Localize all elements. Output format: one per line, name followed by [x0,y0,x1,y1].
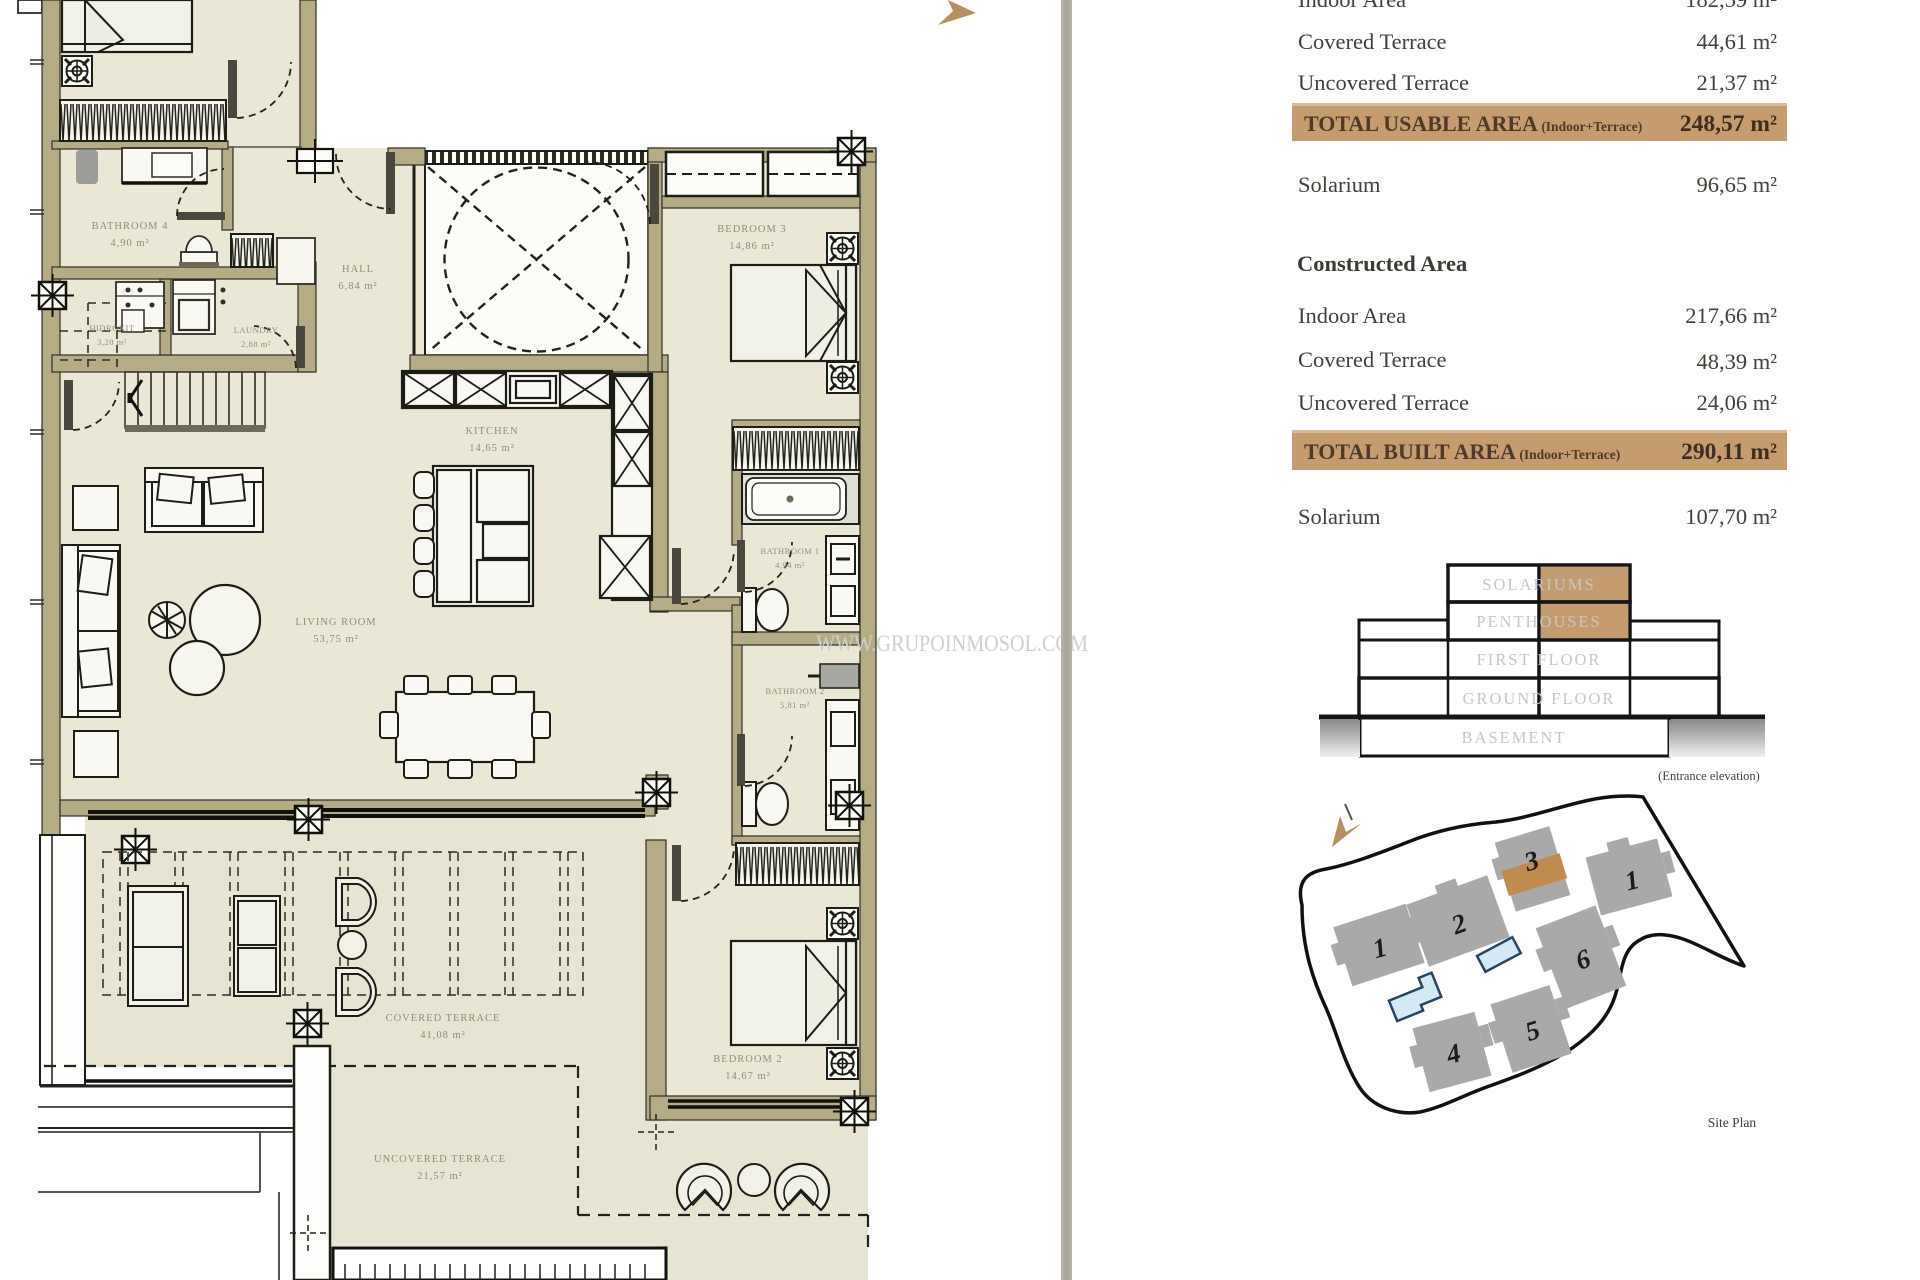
svg-text:41,08 m²: 41,08 m² [420,1030,466,1041]
svg-text:(Entrance elevation): (Entrance elevation) [1658,769,1760,783]
svg-text:53,75 m²: 53,75 m² [313,634,359,645]
svg-text:Covered Terrace: Covered Terrace [1298,347,1447,372]
svg-text:3,20 m²: 3,20 m² [97,337,127,347]
svg-text:21,57 m²: 21,57 m² [417,1171,463,1182]
svg-text:Constructed Area: Constructed Area [1297,251,1467,276]
svg-text:HIDROKIT: HIDROKIT [89,323,134,333]
svg-text:UNCOVERED TERRACE: UNCOVERED TERRACE [374,1154,506,1165]
svg-text:248,57 m²: 248,57 m² [1680,111,1777,137]
svg-text:21,37 m²: 21,37 m² [1697,70,1778,95]
svg-text:COVERED TERRACE: COVERED TERRACE [386,1013,501,1024]
svg-text:BATHROOM 4: BATHROOM 4 [92,221,169,232]
svg-text:BASEMENT: BASEMENT [1462,728,1567,747]
svg-text:217,66 m²: 217,66 m² [1685,303,1777,328]
svg-text:Uncovered Terrace: Uncovered Terrace [1298,70,1469,95]
svg-text:14,65 m²: 14,65 m² [469,443,515,454]
svg-text:2,88 m²: 2,88 m² [241,339,271,349]
svg-text:LIVING ROOM: LIVING ROOM [295,617,376,628]
svg-text:6,84 m²: 6,84 m² [338,281,377,292]
svg-text:GROUND FLOOR: GROUND FLOOR [1463,689,1616,708]
svg-text:96,65 m²: 96,65 m² [1697,172,1778,197]
svg-text:4,90 m²: 4,90 m² [110,238,149,249]
svg-text:5,81 m²: 5,81 m² [780,700,810,710]
svg-text:BEDROOM 3: BEDROOM 3 [717,224,786,235]
svg-text:SOLARIUMS: SOLARIUMS [1482,575,1595,594]
svg-text:Indoor Area: Indoor Area [1298,303,1406,328]
svg-text:Indoor Area: Indoor Area [1298,0,1406,12]
svg-text:Covered Terrace: Covered Terrace [1298,29,1447,54]
svg-text:4,94 m²: 4,94 m² [775,560,805,570]
svg-text:Solarium: Solarium [1298,172,1381,197]
svg-text:182,59 m²: 182,59 m² [1685,0,1777,12]
svg-text:KITCHEN: KITCHEN [465,426,518,437]
svg-text:14,86 m²: 14,86 m² [729,241,775,252]
svg-text:290,11 m²: 290,11 m² [1681,439,1777,465]
svg-text:Uncovered Terrace: Uncovered Terrace [1298,390,1469,415]
svg-text:BEDROOM 2: BEDROOM 2 [713,1054,782,1065]
svg-text:14,67 m²: 14,67 m² [725,1071,771,1082]
svg-text:48,39 m²: 48,39 m² [1697,349,1778,374]
svg-text:Solarium: Solarium [1298,504,1381,529]
svg-text:24,06 m²: 24,06 m² [1697,390,1778,415]
svg-text:107,70 m²: 107,70 m² [1685,504,1777,529]
svg-text:HALL: HALL [342,264,374,275]
svg-text:BATHROOM 1: BATHROOM 1 [760,546,819,556]
svg-text:WWW.GRUPOINMOSOL.COM: WWW.GRUPOINMOSOL.COM [816,631,1088,656]
svg-text:FIRST FLOOR: FIRST FLOOR [1477,650,1602,669]
svg-text:Site Plan: Site Plan [1708,1115,1757,1130]
svg-text:PENTHOUSES: PENTHOUSES [1476,612,1601,631]
svg-text:LAUNDRY: LAUNDRY [234,325,279,335]
svg-text:BATHROOM 2: BATHROOM 2 [765,686,824,696]
svg-text:44,61 m²: 44,61 m² [1697,29,1778,54]
